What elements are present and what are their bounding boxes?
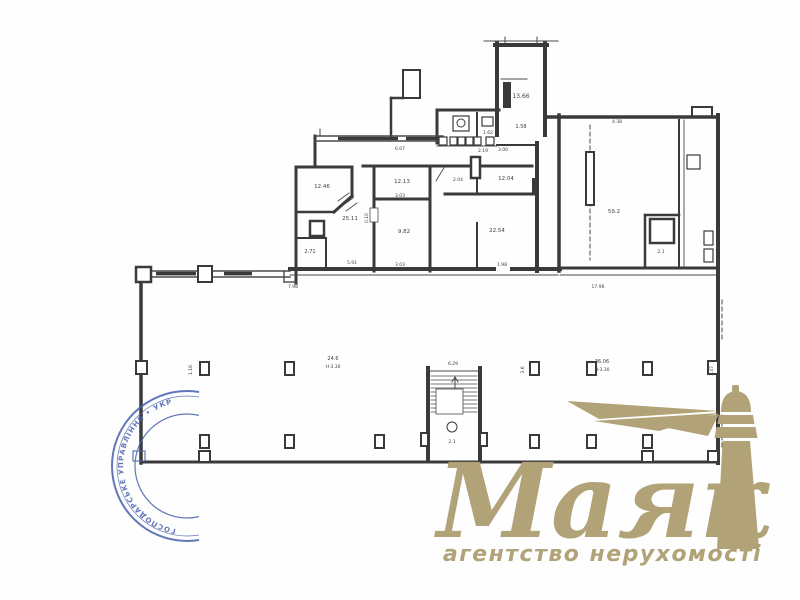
svg-text:12.46: 12.46: [314, 184, 330, 190]
svg-text:3.47: 3.47: [709, 366, 715, 376]
plan-openings: [370, 208, 463, 414]
svg-text:6.07: 6.07: [395, 146, 405, 152]
stamp-inner-ring: [135, 414, 239, 518]
floor-plan-image: 13.661.581.6212.4625.112.7112.139.822.04…: [0, 0, 800, 600]
svg-text:36.06: 36.06: [595, 359, 609, 365]
svg-text:12.04: 12.04: [498, 176, 514, 182]
lighthouse-band-1: [718, 415, 755, 424]
svg-text:13.66: 13.66: [512, 93, 529, 100]
svg-text:H-3.30: H-3.30: [594, 367, 609, 373]
lighthouse-band-2: [715, 427, 758, 438]
plan-walls: [141, 43, 718, 463]
svg-text:3.03: 3.03: [395, 262, 405, 268]
svg-text:25.11: 25.11: [342, 216, 358, 222]
agency-logo: Маяк агентство нерухомості: [434, 385, 771, 567]
svg-text:9.82: 9.82: [398, 229, 410, 235]
logo-subtitle: агентство нерухомості: [443, 542, 762, 567]
svg-text:1.62: 1.62: [483, 130, 493, 136]
svg-text:17.96: 17.96: [592, 284, 605, 290]
svg-text:59.2: 59.2: [608, 209, 620, 215]
svg-text:0.10: 0.10: [364, 213, 370, 223]
svg-text:1.58: 1.58: [515, 124, 526, 130]
svg-text:3.6: 3.6: [520, 366, 526, 373]
svg-text:4.38: 4.38: [612, 119, 622, 125]
svg-text:6.29: 6.29: [448, 361, 458, 367]
svg-text:3.03: 3.03: [395, 193, 405, 199]
plan-dashed-lines: [590, 125, 722, 450]
plan-thin-lines: [152, 37, 716, 412]
lighthouse-lantern: [732, 385, 739, 392]
svg-text:2.19: 2.19: [478, 148, 488, 154]
svg-text:2.04: 2.04: [453, 177, 463, 183]
svg-text:2.71: 2.71: [304, 249, 315, 255]
svg-text:12.13: 12.13: [394, 179, 410, 185]
stamp-inner-mark: [133, 451, 145, 461]
svg-text:24.6: 24.6: [327, 356, 338, 362]
svg-text:3.00: 3.00: [498, 147, 508, 153]
svg-text:7.98: 7.98: [288, 284, 298, 290]
lighthouse-dome: [721, 391, 751, 412]
svg-text:1.98: 1.98: [497, 262, 507, 268]
svg-text:22.54: 22.54: [489, 228, 505, 234]
svg-text:2.1: 2.1: [657, 249, 664, 255]
scanned-floor-plan-page: 13.661.581.6212.4625.112.7112.139.822.04…: [0, 0, 800, 600]
svg-text:5.91: 5.91: [347, 260, 357, 266]
svg-text:H-3.30: H-3.30: [325, 364, 340, 370]
svg-text:1.16: 1.16: [188, 365, 194, 375]
